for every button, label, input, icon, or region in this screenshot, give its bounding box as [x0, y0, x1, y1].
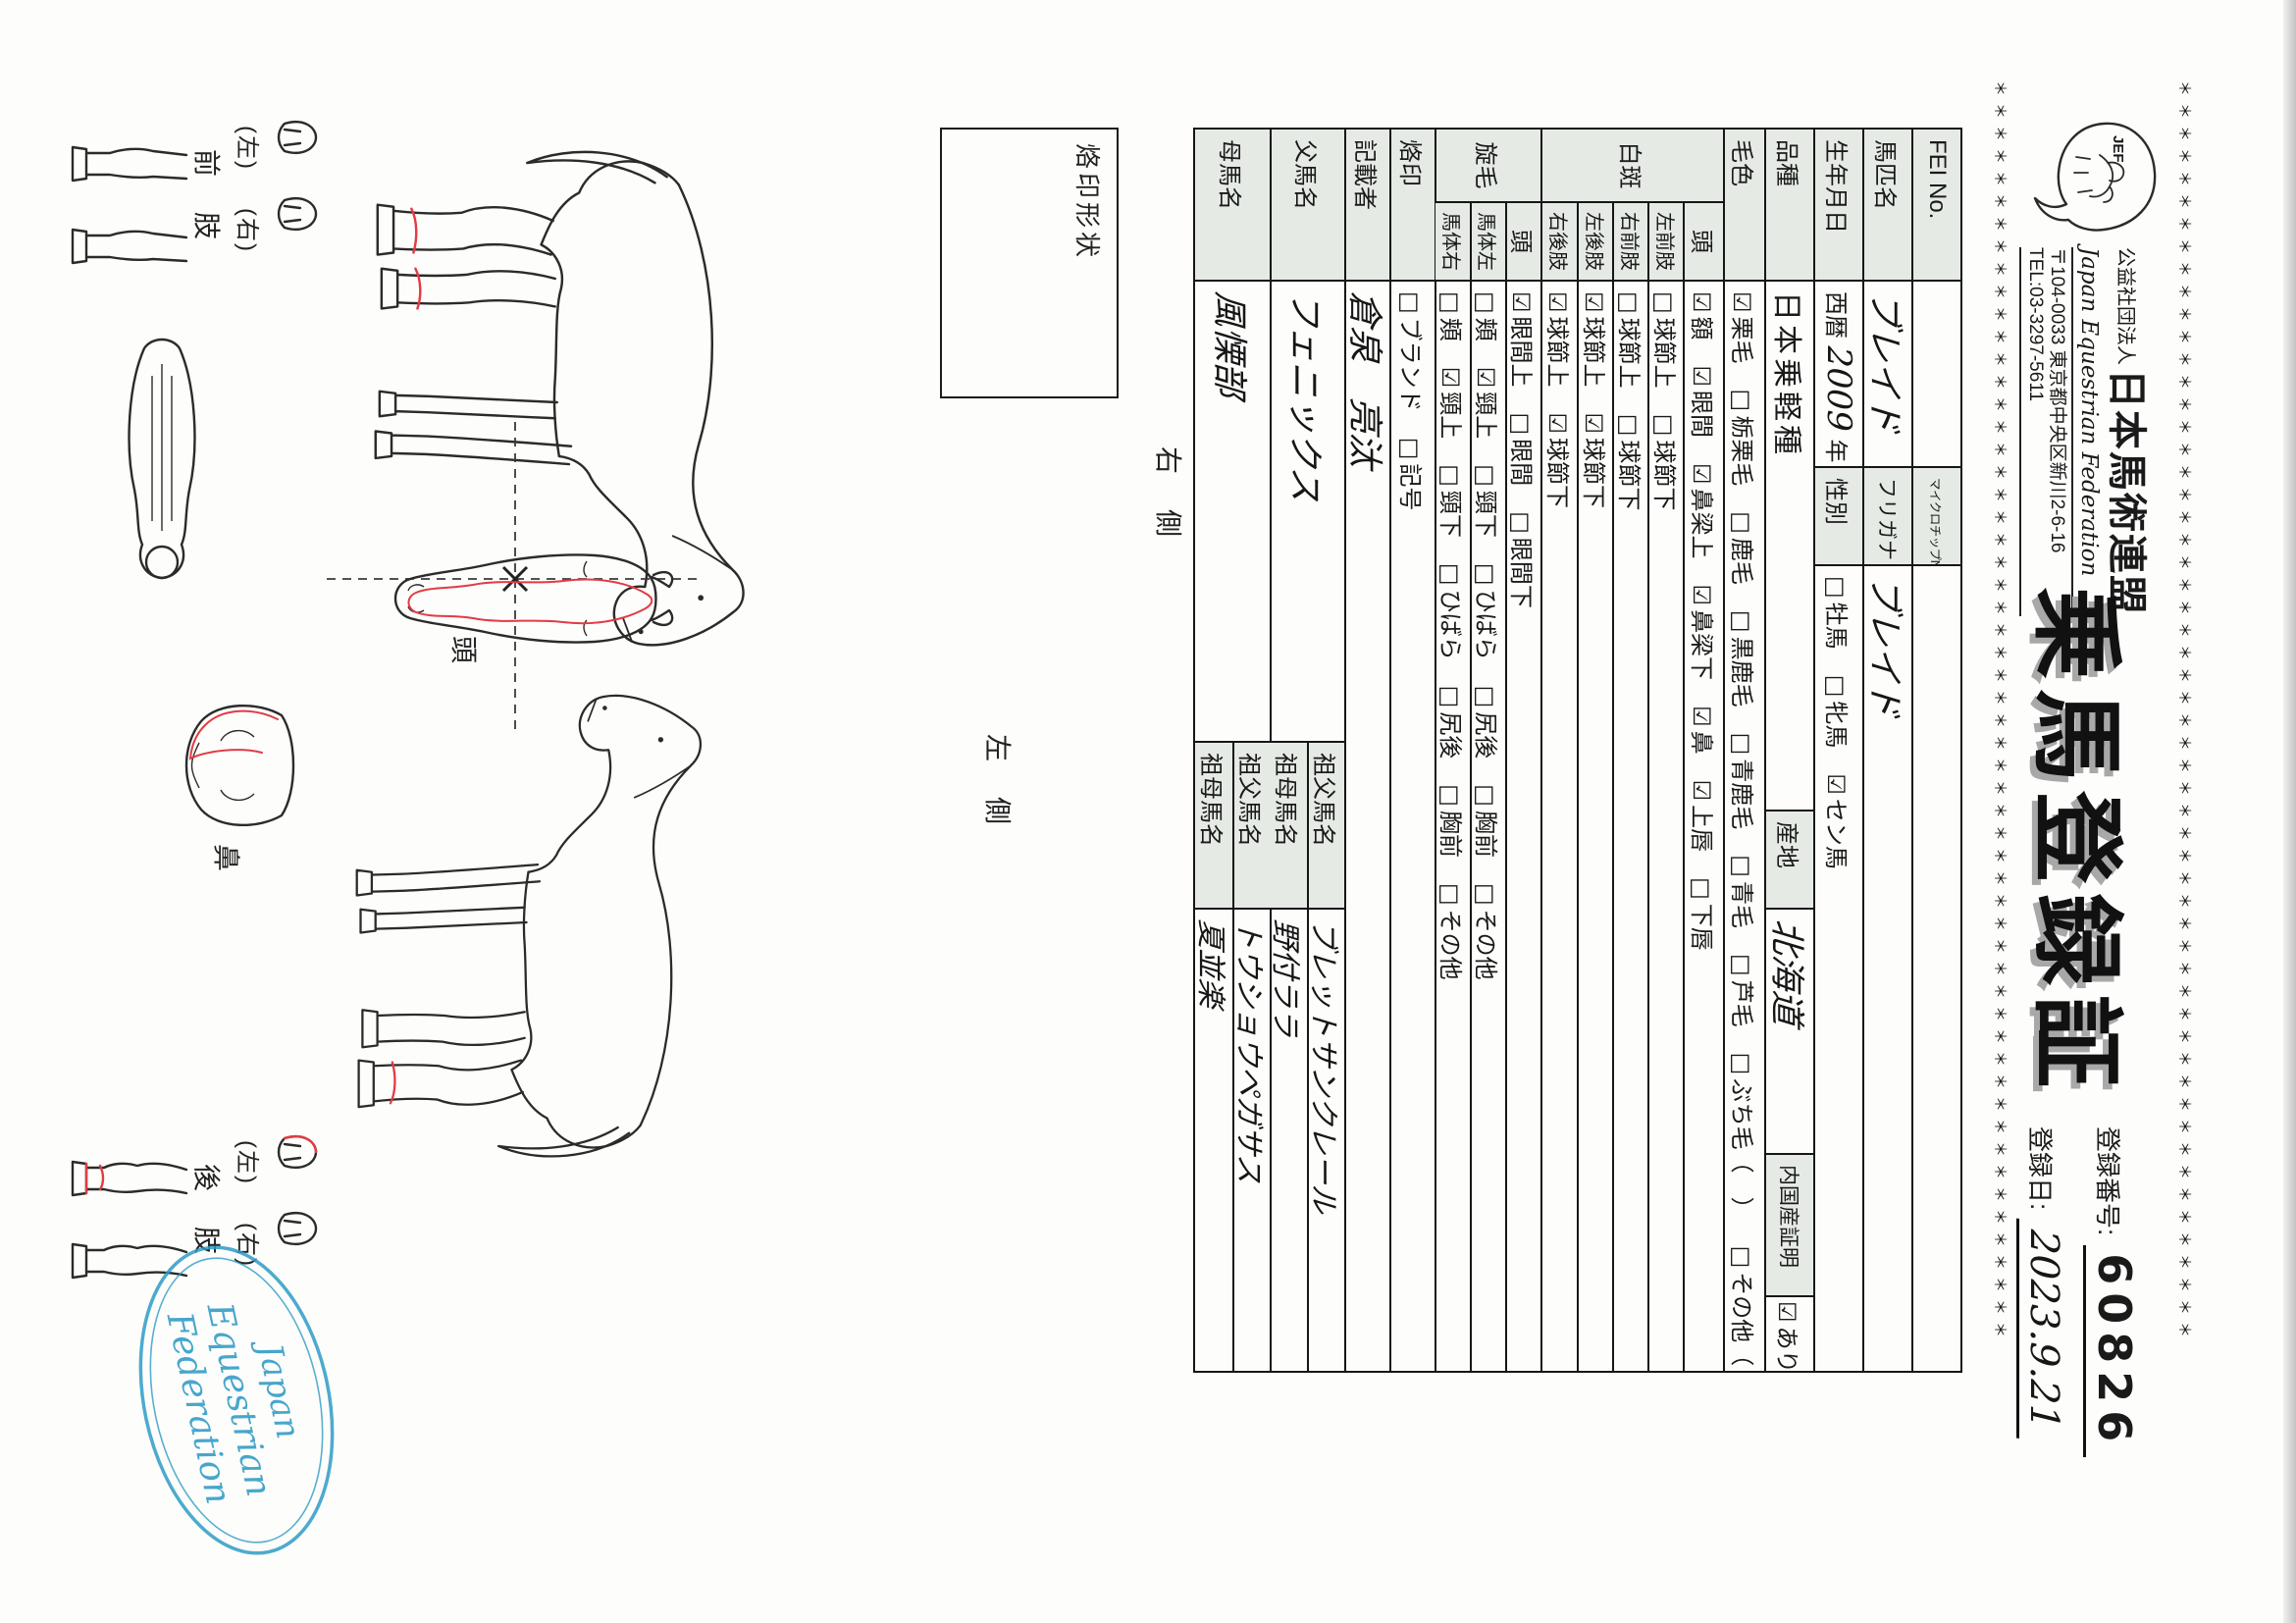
- brand-options: □ブランド □記号: [1391, 282, 1435, 1371]
- sex-option: ☑セン馬: [1822, 773, 1856, 869]
- markings-row-lh: 左後肢 ☑球節上 ☑球節下: [1577, 203, 1612, 1371]
- markings-lh-label: 左後肢: [1579, 203, 1612, 282]
- registration-date-line: 登録日:2023.9.21: [2016, 1126, 2066, 1457]
- front-limb-right-label: (右): [233, 208, 267, 253]
- microchip-value: [1913, 566, 1960, 1371]
- table-group-markings: 白斑 頭 ☑額 ☑眼間 ☑鼻梁上 ☑鼻梁下 ☑鼻 ☑上唇 □下唇 左前肢: [1540, 130, 1723, 1371]
- fei-label: FEI No.: [1913, 130, 1960, 282]
- kana-value: ブレイド: [1864, 566, 1911, 1371]
- table-row-brand: 烙印 □ブランド □記号: [1389, 130, 1435, 1371]
- org-address: 〒104-0033 東京都中央区新川2-6-16: [2046, 247, 2071, 616]
- sire-label: 父馬名: [1272, 130, 1344, 282]
- org-name-line: 公益社団法人日本馬術連盟: [2104, 247, 2149, 616]
- front-limb-left-label: (左): [233, 126, 267, 171]
- coat-option: □芦毛: [1728, 954, 1762, 1027]
- sex-option: □牡馬: [1822, 576, 1856, 650]
- markings-label: 白斑: [1542, 130, 1723, 203]
- scan-edge-shadow: [2283, 0, 2296, 1623]
- brand-label: 烙印: [1391, 130, 1435, 282]
- sire-grandsire-row: 祖父馬名 ブレットサンクレール: [1307, 743, 1344, 1371]
- whorls-head-options: ☑眼間上 □眼間 □眼間下: [1507, 282, 1540, 1371]
- front-hoof-soles-figure: [275, 116, 322, 263]
- whorls-label: 旋毛: [1436, 130, 1540, 203]
- coat-option: □青鹿毛: [1728, 733, 1762, 830]
- table-row-dam: 母馬名 風慄部 祖父馬名 トウショウペガサス 祖母馬名 夏並楽: [1195, 130, 1270, 1371]
- dam-grandsire-value: トウショウペガサス: [1234, 910, 1270, 1371]
- markings-rh-options: ☑球節上 ☑球節下: [1542, 282, 1577, 1371]
- table-row-breed: 品種 日本乗軽種 産地 北海道 内国産証明 ☑あり: [1764, 130, 1813, 1371]
- coat-option: □黒鹿毛: [1728, 610, 1762, 707]
- markings-rf-label: 右前肢: [1614, 203, 1647, 282]
- birthdate-value: 西暦2009年4月18日生: [1815, 282, 1862, 468]
- kana-label: フリガナ: [1864, 468, 1911, 566]
- domestic-cert-label: 内国産証明: [1766, 1155, 1813, 1297]
- jef-logo: JEF: [2024, 114, 2163, 230]
- birthdate-label: 生年月日: [1815, 130, 1862, 282]
- left-side-view-label: 左 側: [979, 734, 1018, 828]
- markings-row-head: 頭 ☑額 ☑眼間 ☑鼻梁上 ☑鼻梁下 ☑鼻 ☑上唇 □下唇: [1683, 203, 1723, 1371]
- coat-option: □鹿毛: [1728, 511, 1762, 585]
- federation-stamp: Japan Equestrian Federation: [130, 1238, 341, 1562]
- horse-name-value: ブレイド: [1864, 282, 1911, 468]
- top-view-figure: [113, 329, 211, 589]
- sire-value: フェニックス: [1272, 282, 1344, 743]
- org-name: 日本馬術連盟: [2104, 369, 2150, 616]
- whorls-bodyright-label: 馬体右: [1435, 203, 1470, 282]
- front-limbs-label: 前 肢: [188, 149, 228, 243]
- page-title: 乗馬登録証: [2017, 587, 2151, 1097]
- markings-lf-options: □球節上 □球節下: [1649, 282, 1683, 1371]
- org-type: 公益社団法人: [2114, 247, 2136, 365]
- coat-label: 毛色: [1725, 130, 1764, 282]
- markings-head-options: ☑額 ☑眼間 ☑鼻梁上 ☑鼻梁下 ☑鼻 ☑上唇 □下唇: [1685, 282, 1723, 1371]
- microchip-label: マイクロチップNo.: [1913, 468, 1960, 566]
- front-limbs-figure: [68, 104, 190, 310]
- registration-block: 登録番号:60826 登録日:2023.9.21: [1995, 1126, 2141, 1457]
- dam-granddam-value: 夏並楽: [1195, 910, 1232, 1371]
- horse-name-label: 馬匹名: [1864, 130, 1911, 282]
- markings-rf-options: □球節上 □球節下: [1614, 282, 1647, 1371]
- jef-logo-text: JEF: [2110, 135, 2126, 163]
- recorder-label: 記載者: [1346, 130, 1389, 282]
- head-view-label: 頭: [445, 636, 485, 667]
- markings-row-rh: 右後肢 ☑球節上 ☑球節下: [1542, 203, 1577, 1371]
- dam-grandsire-label: 祖父馬名: [1234, 743, 1270, 910]
- breed-label: 品種: [1766, 130, 1813, 282]
- sire-grandsire-label: 祖父馬名: [1309, 743, 1344, 910]
- jef-logo-bubble-icon: JEF: [2029, 114, 2163, 230]
- table-row-recorder: 記載者 倉泉 亮汰: [1344, 130, 1389, 1371]
- hind-limb-left-label: (左): [233, 1140, 267, 1185]
- org-tel: TEL:03-3297-5611: [2019, 247, 2046, 616]
- coat-option: □その他（ ）: [1728, 1246, 1762, 1371]
- org-name-en: Japan Equestrian Federation: [2071, 247, 2104, 616]
- table-group-whorls: 旋毛 頭 ☑眼間上 □眼間 □眼間下 馬体左 □頬 ☑頸上 □頸下: [1435, 130, 1540, 1371]
- recorder-value: 倉泉 亮汰: [1346, 282, 1389, 1371]
- whorls-row-bodyleft: 馬体左 □頬 ☑頸上 □頸下 □ひばら □尻後 □胸前 □その他: [1470, 203, 1505, 1371]
- head-front-figure: [324, 422, 697, 736]
- fei-value: [1913, 282, 1960, 468]
- registration-table: FEI No. マイクロチップNo. 馬匹名 ブレイド フリガナ ブレイド 生年…: [1193, 128, 1962, 1373]
- sex-option: □牝馬: [1822, 675, 1856, 749]
- breed-value: 日本乗軽種: [1766, 282, 1813, 811]
- coat-option: □青毛: [1728, 855, 1762, 928]
- markings-row-lf: 左前肢 □球節上 □球節下: [1647, 203, 1683, 1371]
- sex-label: 性別: [1815, 468, 1862, 566]
- sire-granddam-label: 祖母馬名: [1270, 743, 1307, 910]
- markings-row-rf: 右前肢 □球節上 □球節下: [1612, 203, 1647, 1371]
- coat-option: □栃栗毛: [1728, 390, 1762, 487]
- table-row-fei: FEI No. マイクロチップNo.: [1911, 130, 1960, 1371]
- brand-shape-label: 烙印形状: [1070, 143, 1107, 261]
- registration-number-line: 登録番号:60826: [2088, 1126, 2141, 1457]
- whorls-bodyleft-label: 馬体左: [1472, 203, 1505, 282]
- coat-options: ☑栗毛 □栃栗毛 □鹿毛 □黒鹿毛 □青鹿毛 □青毛 □芦毛 □ぶち毛（ ） □…: [1725, 282, 1764, 1371]
- dam-granddam-label: 祖母馬名: [1195, 743, 1232, 910]
- certificate-document: ＊＊＊＊＊＊＊＊＊＊＊＊＊＊＊＊＊＊＊＊＊＊＊＊＊＊＊＊＊＊＊＊＊＊＊＊＊＊＊＊…: [0, 0, 2296, 1623]
- dam-label: 母馬名: [1195, 130, 1270, 282]
- coat-option: □ぶち毛（ ）: [1728, 1053, 1762, 1221]
- sire-grandsire-value: ブレットサンクレール: [1309, 910, 1344, 1371]
- dam-granddam-row: 祖母馬名 夏並楽: [1195, 743, 1232, 1371]
- whorls-bodyright-options: □頬 ☑頸上 □頸下 □ひばら □尻後 □胸前 □その他: [1435, 282, 1470, 1371]
- sire-granddam-value: 野付ララ: [1270, 910, 1307, 1371]
- table-row-sire: 父馬名 フェニックス 祖父馬名 ブレットサンクレール 祖母馬名 野付ララ: [1270, 130, 1344, 1371]
- whorls-head-label: 頭: [1507, 203, 1540, 282]
- brand-shape-box: 烙印形状: [940, 128, 1119, 398]
- origin-value: 北海道: [1766, 910, 1813, 1155]
- scanned-page: ＊＊＊＊＊＊＊＊＊＊＊＊＊＊＊＊＊＊＊＊＊＊＊＊＊＊＊＊＊＊＊＊＊＊＊＊＊＊＊＊…: [0, 0, 2296, 1623]
- markings-lf-label: 左前肢: [1649, 203, 1683, 282]
- federation-block: 公益社団法人日本馬術連盟 Japan Equestrian Federation…: [2019, 247, 2149, 616]
- reg-date-value: 2023.9.21: [2016, 1219, 2066, 1440]
- dam-value: 風慄部: [1195, 282, 1270, 743]
- sire-granddam-row: 祖母馬名 野付ララ: [1270, 743, 1307, 1371]
- markings-rh-label: 右後肢: [1542, 203, 1577, 282]
- dam-grandsire-row: 祖父馬名 トウショウペガサス: [1232, 743, 1270, 1371]
- right-side-view-label: 右 側: [1150, 446, 1189, 541]
- muzzle-view-label: 鼻: [208, 844, 247, 875]
- table-row-coat: 毛色 ☑栗毛 □栃栗毛 □鹿毛 □黒鹿毛 □青鹿毛 □青毛 □芦毛 □ぶち毛（ …: [1723, 130, 1764, 1371]
- reg-no-label: 登録番号:: [2093, 1126, 2122, 1235]
- muzzle-figure: [177, 682, 309, 849]
- domestic-cert-value: ☑あり: [1766, 1297, 1813, 1371]
- whorls-row-head: 頭 ☑眼間上 □眼間 □眼間下: [1505, 203, 1540, 1371]
- asterisk-border-top: ＊＊＊＊＊＊＊＊＊＊＊＊＊＊＊＊＊＊＊＊＊＊＊＊＊＊＊＊＊＊＊＊＊＊＊＊＊＊＊＊…: [2174, 80, 2198, 1543]
- origin-label: 産地: [1766, 811, 1813, 910]
- sex-options: □牡馬 □牝馬 ☑セン馬: [1815, 566, 1862, 1371]
- reg-no-value: 60826: [2083, 1245, 2141, 1457]
- table-row-name: 馬匹名 ブレイド フリガナ ブレイド: [1862, 130, 1911, 1371]
- coat-option: ☑栗毛: [1728, 291, 1762, 364]
- reg-date-label: 登録日:: [2025, 1126, 2055, 1210]
- whorls-bodyleft-options: □頬 ☑頸上 □頸下 □ひばら □尻後 □胸前 □その他: [1472, 282, 1505, 1371]
- table-row-birth: 生年月日 西暦2009年4月18日生 性別 □牡馬 □牝馬 ☑セン馬: [1813, 130, 1862, 1371]
- markings-head-label: 頭: [1685, 203, 1723, 282]
- markings-lh-options: ☑球節上 ☑球節下: [1579, 282, 1612, 1371]
- whorls-row-bodyright: 馬体右 □頬 ☑頸上 □頸下 □ひばら □尻後 □胸前 □その他: [1435, 203, 1470, 1371]
